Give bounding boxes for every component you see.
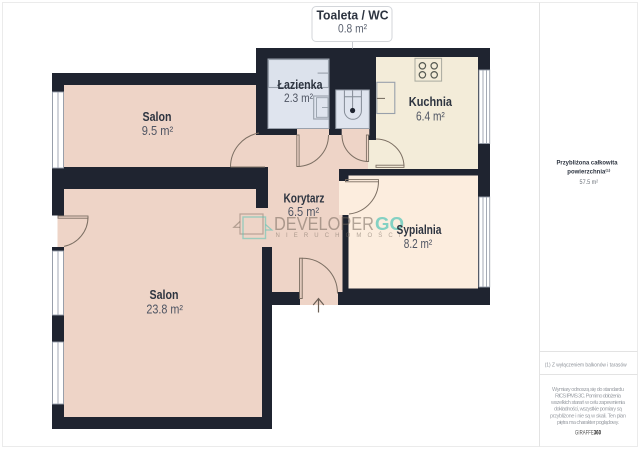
- svg-text:6.4 m²: 6.4 m²: [416, 110, 445, 124]
- svg-text:8.2 m²: 8.2 m²: [404, 237, 433, 251]
- svg-text:Przybliżona całkowita: Przybliżona całkowita: [557, 160, 619, 167]
- svg-text:powierzchnia⁽¹⁾: powierzchnia⁽¹⁾: [567, 169, 610, 176]
- svg-text:przybliżone i nie są w skali.: przybliżone i nie są w skali. Ten plan: [550, 413, 626, 419]
- svg-text:GIRAFFE360: GIRAFFE360: [575, 430, 601, 437]
- svg-text:Sypialnia: Sypialnia: [397, 222, 443, 237]
- svg-text:Korytarz: Korytarz: [284, 191, 325, 206]
- svg-text:Wymiary odnoszą się do standar: Wymiary odnoszą się do standardu: [552, 387, 624, 393]
- svg-text:Toaleta / WC: Toaleta / WC: [317, 8, 390, 23]
- svg-text:RICS IPMS 3C. Pomimo dołożenia: RICS IPMS 3C. Pomimo dołożenia: [555, 393, 622, 399]
- svg-text:piętra ma charakter poglądowy.: piętra ma charakter poglądowy.: [557, 420, 619, 426]
- svg-text:9.5 m²: 9.5 m²: [142, 124, 174, 138]
- svg-text:Salon: Salon: [143, 109, 172, 124]
- svg-text:23.8 m²: 23.8 m²: [146, 303, 183, 317]
- svg-text:(1) Z wyłączeniem balkonów i t: (1) Z wyłączeniem balkonów i tarasów: [545, 363, 628, 369]
- svg-text:wszelkich starań w celu zapewn: wszelkich starań w celu zapewnienia: [550, 400, 626, 406]
- svg-text:NIERUCHOMOŚCI: NIERUCHOMOŚCI: [276, 231, 401, 239]
- svg-text:6.5 m²: 6.5 m²: [288, 205, 319, 219]
- svg-text:Salon: Salon: [150, 287, 179, 302]
- svg-text:Kuchnia: Kuchnia: [409, 94, 453, 109]
- svg-text:57.5 m²: 57.5 m²: [580, 179, 599, 186]
- svg-text:0.8 m²: 0.8 m²: [338, 22, 367, 36]
- svg-text:Łazienka: Łazienka: [278, 77, 324, 92]
- svg-text:dokładności, wszystkie pomiary: dokładności, wszystkie pomiary są: [554, 407, 623, 413]
- svg-text:2.3 m²: 2.3 m²: [284, 91, 313, 105]
